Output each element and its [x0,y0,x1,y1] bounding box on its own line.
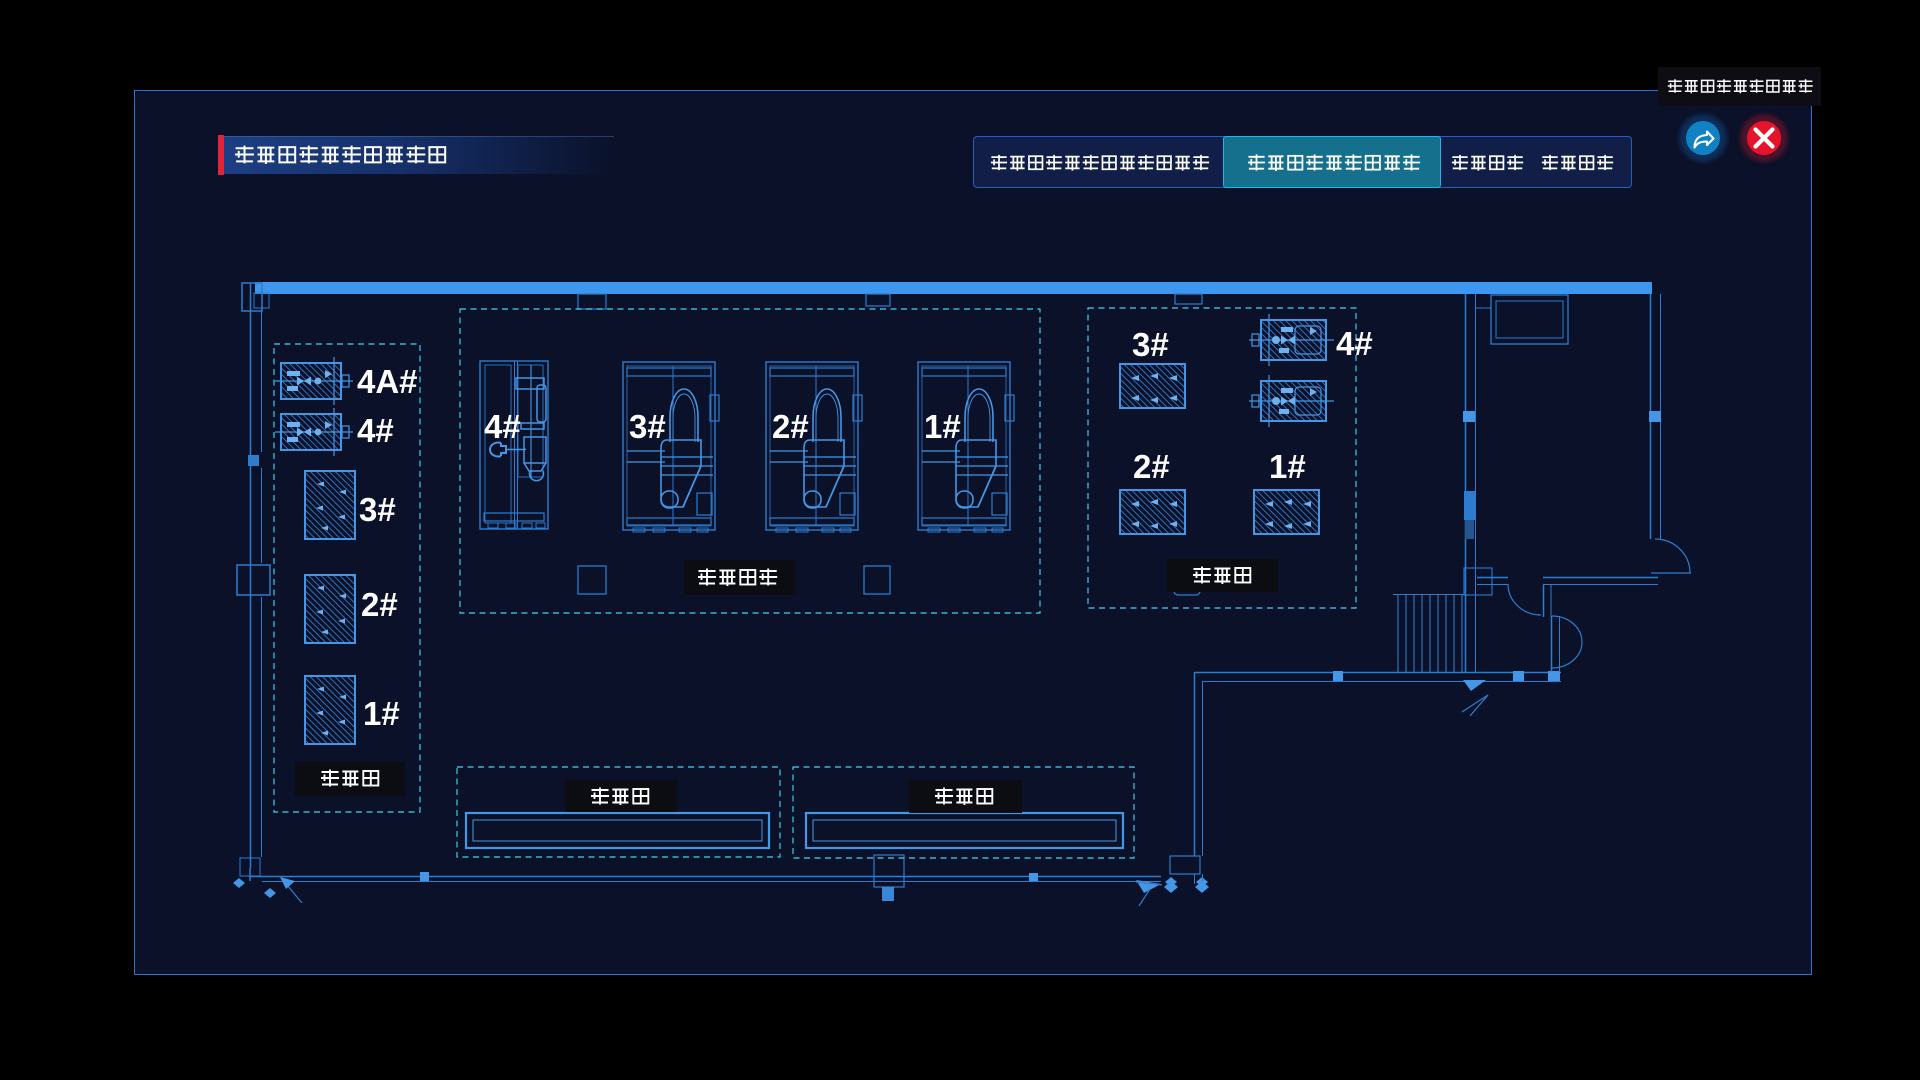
svg-text:4A#: 4A# [357,363,418,400]
svg-text:3#: 3# [629,408,666,445]
svg-text:2#: 2# [772,408,809,445]
svg-text:4#: 4# [484,408,521,445]
svg-text:1#: 1# [1269,448,1306,485]
svg-text:2#: 2# [1133,448,1170,485]
svg-text:2#: 2# [361,586,398,623]
svg-text:1#: 1# [924,408,961,445]
svg-text:4#: 4# [357,412,394,449]
svg-text:3#: 3# [359,491,396,528]
svg-text:4#: 4# [1336,325,1373,362]
svg-text:3#: 3# [1132,326,1169,363]
svg-text:1#: 1# [363,695,400,732]
